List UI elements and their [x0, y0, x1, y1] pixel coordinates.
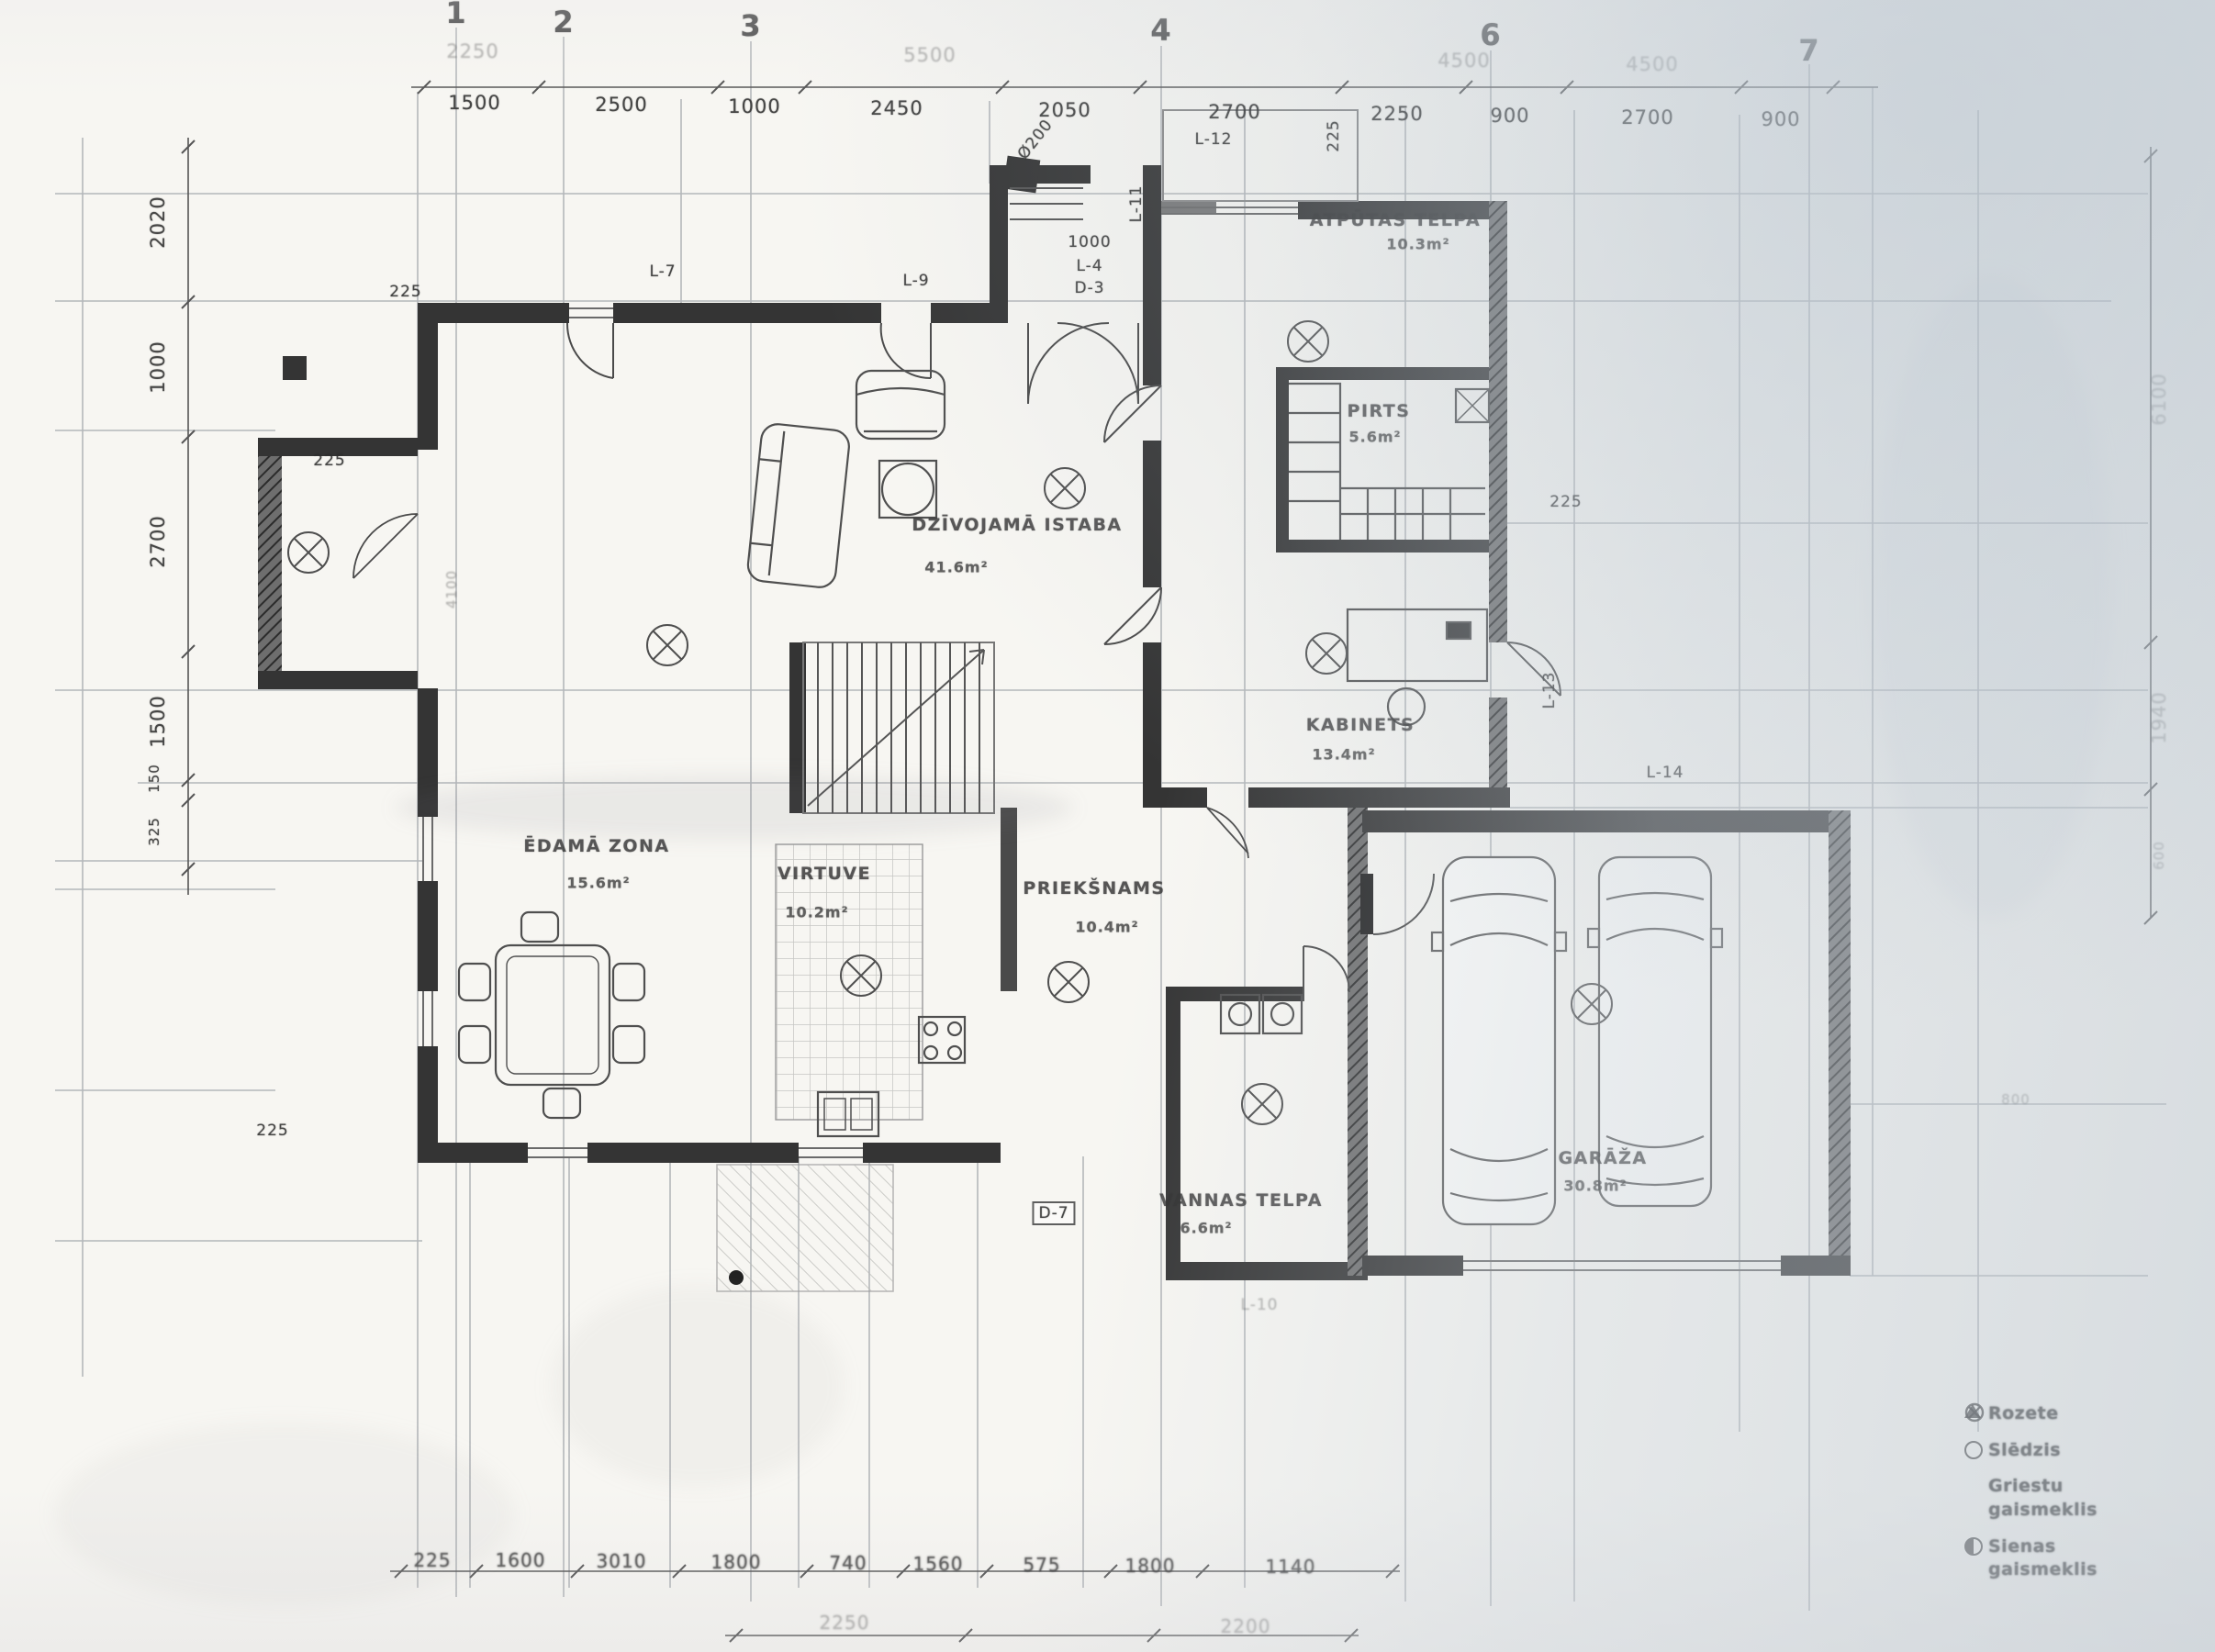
grid-column-4: 4: [1150, 13, 1171, 48]
dim-top-3: 2450: [870, 97, 923, 119]
room-area-edama: 15.6m²: [566, 875, 630, 892]
wall-thickness-label-2: 225: [1549, 493, 1582, 511]
dim-right-3: 800: [2001, 1091, 2030, 1108]
room-area-atputas: 10.3m²: [1386, 236, 1449, 253]
dim-left-5: 325: [146, 817, 162, 846]
dim-top-8: 2700: [1621, 106, 1673, 128]
room-area-dzivojama: 41.6m²: [924, 559, 988, 576]
legend-label: Griestu gaismeklis: [1988, 1475, 2144, 1522]
dim-bottom-2: 3010: [597, 1550, 647, 1572]
room-label-pirts: PIRTS: [1348, 401, 1411, 421]
room-area-virtuve: 10.2m²: [785, 904, 848, 921]
dim-top-6: 2250: [1370, 103, 1423, 125]
entry-width-label: 1000: [1068, 233, 1111, 251]
opening-l9: L-9: [902, 272, 929, 290]
dim-right-0: 6100: [2148, 373, 2170, 425]
dim-bottom-7: 1800: [1125, 1555, 1176, 1577]
dim-top-5: 2700: [1208, 101, 1260, 123]
room-area-prieksnams: 10.4m²: [1075, 919, 1138, 936]
legend-label: Slēdzis: [1988, 1439, 2144, 1463]
wall-thickness-label-0: 225: [389, 283, 421, 301]
wall-thickness-label-1: 225: [313, 452, 345, 470]
wall-thickness-label-4: 225: [1325, 119, 1343, 151]
dim-bottom-0: 225: [413, 1549, 451, 1571]
floorplan-sheet: 1 2 3 4 6 7 2250 5500 4500 4500 1500 250…: [0, 0, 2215, 1652]
room-label-prieksnams: PRIEKŠNAMS: [1023, 878, 1165, 899]
opening-l11: L-11: [1127, 185, 1146, 223]
opening-d3: D-3: [1074, 279, 1104, 297]
dim-bottom-3: 1800: [711, 1551, 762, 1573]
dim-top-faint-0: 2250: [446, 40, 498, 62]
car-1: [1432, 857, 1566, 1224]
dim-top-1: 2500: [595, 94, 647, 116]
dim-bottom-lower-0: 2250: [820, 1612, 870, 1634]
room-area-vannas: 6.6m²: [1180, 1220, 1232, 1237]
dim-left-4: 150: [146, 764, 162, 793]
grid-column-7: 7: [1798, 33, 1819, 68]
opening-l7: L-7: [649, 262, 676, 281]
room-label-vannas: VANNAS TELPA: [1159, 1190, 1323, 1211]
legend-label: Rozete: [1988, 1402, 2144, 1426]
room-label-dzivojama: DZĪVOJAMĀ ISTABA: [912, 515, 1122, 535]
grid-column-2: 2: [553, 5, 574, 39]
legend-item-sienas-gaismeklis: Sienas gaismeklis: [1964, 1535, 2215, 1582]
dim-left-3: 1500: [147, 695, 169, 747]
dim-bottom-lower-1: 2200: [1221, 1615, 1271, 1637]
dim-left-0: 2020: [147, 195, 169, 248]
stairs: [803, 188, 1083, 813]
opening-l12: L-12: [1195, 130, 1233, 149]
dim-top-7: 900: [1490, 105, 1529, 127]
dim-left-1: 1000: [147, 340, 169, 393]
legend: Rozete Slēdzis Griestu gaismeklis Sienas…: [1964, 1402, 2215, 1595]
dim-bottom-6: 575: [1023, 1554, 1060, 1576]
legend-item-griestu-gaismeklis: Griestu gaismeklis: [1964, 1475, 2215, 1522]
legend-label: Sienas gaismeklis: [1988, 1535, 2144, 1582]
grid-column-1: 1: [445, 0, 466, 30]
dim-bottom-4: 740: [829, 1552, 867, 1574]
room-label-virtuve: VIRTUVE: [777, 864, 871, 884]
dim-top-faint-2: 4500: [1438, 50, 1490, 72]
dim-bottom-5: 1560: [913, 1553, 964, 1575]
windows: [423, 207, 1781, 1270]
opening-l14: L-14: [1647, 764, 1684, 782]
grid-column-3: 3: [740, 8, 761, 43]
dim-right-1: 1940: [2148, 691, 2170, 743]
switch-circle-icon: [1964, 1441, 1983, 1459]
dim-top-faint-3: 4500: [1626, 53, 1678, 75]
room-area-kabinets: 13.4m²: [1312, 746, 1375, 764]
wall-thickness-label-3: 225: [256, 1122, 288, 1140]
legend-item-rozete: Rozete: [1964, 1402, 2215, 1426]
dim-bottom-8: 1140: [1266, 1556, 1316, 1578]
room-label-garaza: GARĀŽA: [1558, 1148, 1647, 1168]
opening-l4: L-4: [1076, 257, 1102, 275]
dim-top-9: 900: [1761, 108, 1800, 130]
dim-right-2: 600: [2151, 841, 2167, 870]
room-area-garaza: 30.8m²: [1563, 1178, 1627, 1195]
opening-l13: L-13: [1540, 672, 1559, 709]
room-label-kabinets: KABINETS: [1306, 715, 1415, 735]
dim-top-0: 1500: [448, 92, 500, 114]
dim-top-2: 1000: [728, 95, 780, 117]
dim-top-faint-1: 5500: [903, 44, 956, 66]
doors: [353, 323, 1561, 1001]
room-area-pirts: 5.6m²: [1348, 429, 1401, 446]
opening-l10: L-10: [1241, 1296, 1279, 1314]
opening-d7: D-7: [1032, 1201, 1075, 1225]
dim-left-2: 2700: [147, 515, 169, 567]
dim-bottom-1: 1600: [496, 1549, 546, 1571]
grid-column-6: 6: [1480, 17, 1501, 52]
wall-light-icon: [1964, 1537, 1983, 1556]
room-label-atputas: ATPŪTAS TELPA: [1310, 210, 1481, 230]
legend-item-sledzis: Slēdzis: [1964, 1439, 2215, 1463]
room-label-edama: ĒDAMĀ ZONA: [523, 836, 669, 856]
bay-dim-label: 4100: [443, 570, 460, 608]
dim-top-4: 2050: [1038, 99, 1091, 121]
